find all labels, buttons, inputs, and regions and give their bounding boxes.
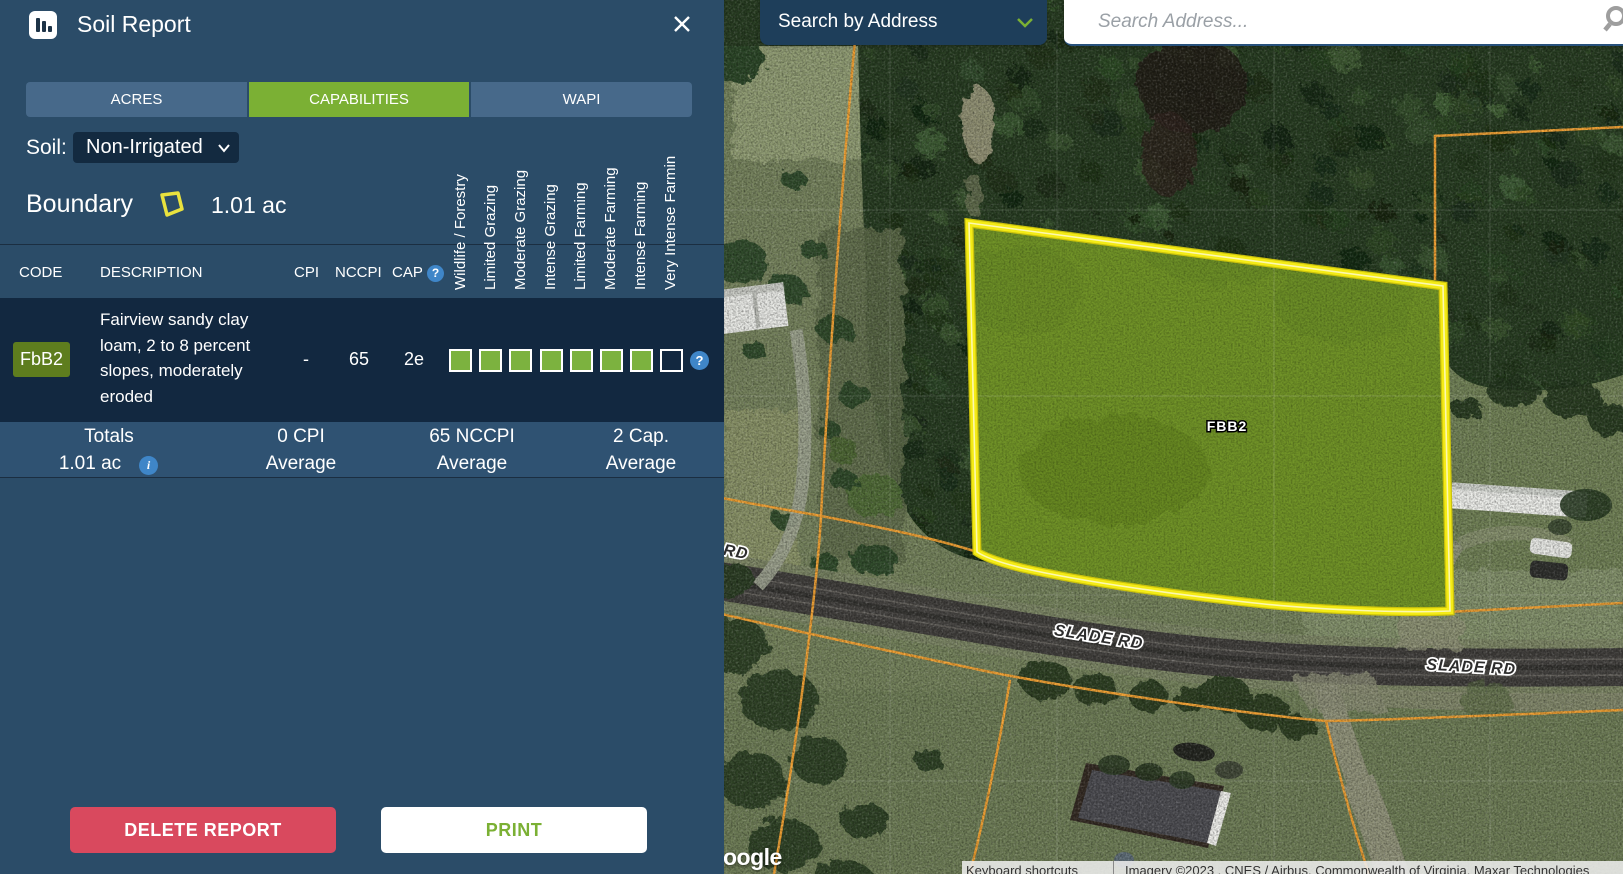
svg-text:FBB2: FBB2 [1207,418,1248,434]
